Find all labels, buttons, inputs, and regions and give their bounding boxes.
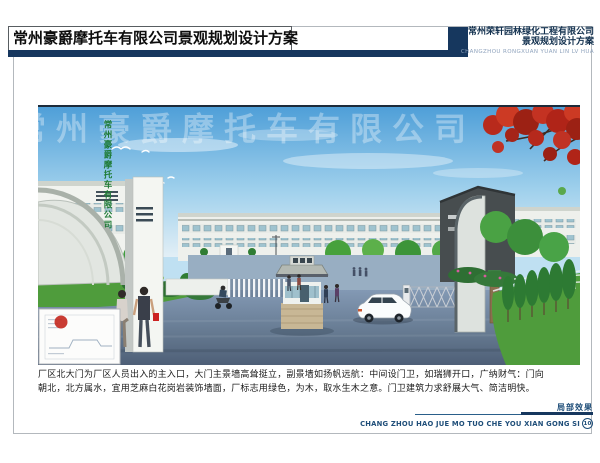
design-sheet: 常州豪爵摩托车有限公司景观规划设计方案 常州荣轩园林绿化工程有限公司 景观规划设… xyxy=(0,0,600,463)
red-stamp xyxy=(55,316,68,329)
site-plan-inset xyxy=(39,309,120,364)
rendering-image xyxy=(38,105,580,365)
description-paragraph: 厂区北大门为厂区人员出入的主入口，大门主景墙高耸挺立，副景墙如扬帆远航：中间设门… xyxy=(38,369,568,396)
page-title: 常州豪爵摩托车有限公司景观规划设计方案 xyxy=(8,26,292,50)
footer-pinyin-text: CHANG ZHOU HAO JUE MO TUO CHE YOU XIAN G… xyxy=(360,420,580,428)
footer-pinyin: CHANG ZHOU HAO JUE MO TUO CHE YOU XIAN G… xyxy=(360,418,593,429)
designer-subtitle: 景观规划设计方案 xyxy=(461,37,594,47)
title-accent-band xyxy=(8,50,450,57)
designer-company: 常州荣轩园林绿化工程有限公司 xyxy=(461,27,594,37)
description-line-1: 厂区北大门为厂区人员出入的主入口，大门主景墙高耸挺立，副景墙如扬帆远航：中间设门… xyxy=(38,369,568,383)
description-line-2: 朝北，北方属水，宜用芝麻白花岗岩装饰墙面，厂标志用绿色，为木，取水生木之意。门卫… xyxy=(38,383,568,397)
caption-underline-accent xyxy=(521,412,593,415)
picket-fence xyxy=(228,279,290,297)
designer-pinyin: CHANGZHOU RONGXUAN YUAN LIN LV HUA xyxy=(461,49,594,55)
designer-block: 常州荣轩园林绿化工程有限公司 景观规划设计方案 CHANGZHOU RONGXU… xyxy=(461,27,594,55)
rendering-scene xyxy=(38,107,580,365)
page-number-badge: 10 xyxy=(582,418,593,429)
